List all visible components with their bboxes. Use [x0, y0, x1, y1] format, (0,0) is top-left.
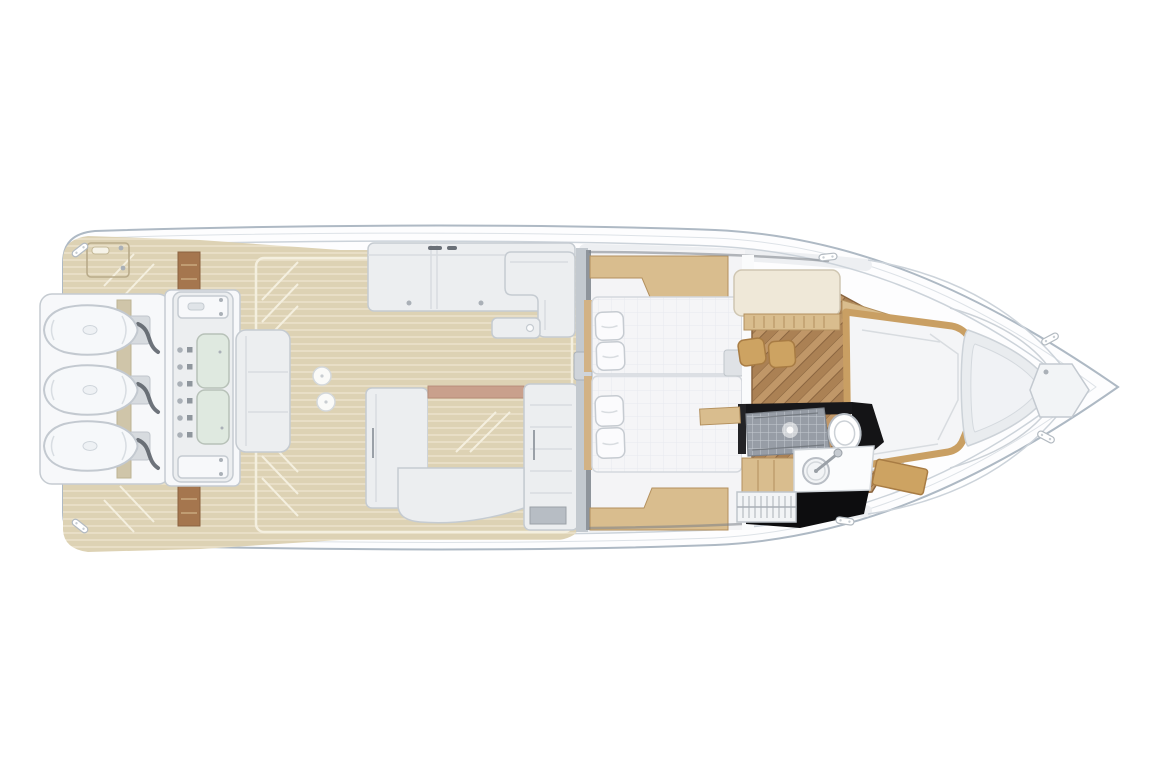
sink-livewell-2 — [197, 390, 229, 444]
galley-shelf-rail — [744, 314, 840, 330]
companionway-steps — [737, 492, 796, 522]
transom-module — [165, 290, 240, 486]
outboard-engine-3 — [44, 421, 138, 471]
sunpad-handle — [428, 246, 442, 250]
outboard-engine-1 — [44, 305, 138, 355]
stool-2 — [768, 340, 796, 368]
sink-livewell-1 — [197, 334, 229, 388]
galley-counter — [734, 270, 840, 316]
corner-storage — [530, 507, 566, 524]
u-shaped-seating — [366, 384, 578, 530]
u-seating-back-pad — [428, 386, 524, 398]
shower-highlight-core — [787, 427, 794, 434]
boat-floor-plan — [0, 0, 1165, 778]
stool-1 — [737, 337, 766, 366]
headboard-trim-2 — [584, 376, 592, 470]
boarding-step-port — [178, 252, 200, 292]
sunpad-handle-2 — [447, 246, 457, 250]
outboard-engines — [44, 305, 158, 471]
boarding-step-starboard — [178, 486, 200, 526]
aft-bench — [236, 330, 290, 452]
anchor-hatch-latch — [1044, 370, 1049, 375]
head-door-threshold — [700, 407, 741, 425]
head-wood-cabinet — [742, 458, 794, 494]
boat-floor-plan-canvas — [0, 0, 1165, 778]
cleat-midship-port — [819, 253, 838, 261]
outboard-engine-2 — [44, 365, 138, 415]
headboard-trim-1 — [584, 300, 592, 372]
module-handle — [188, 303, 204, 310]
